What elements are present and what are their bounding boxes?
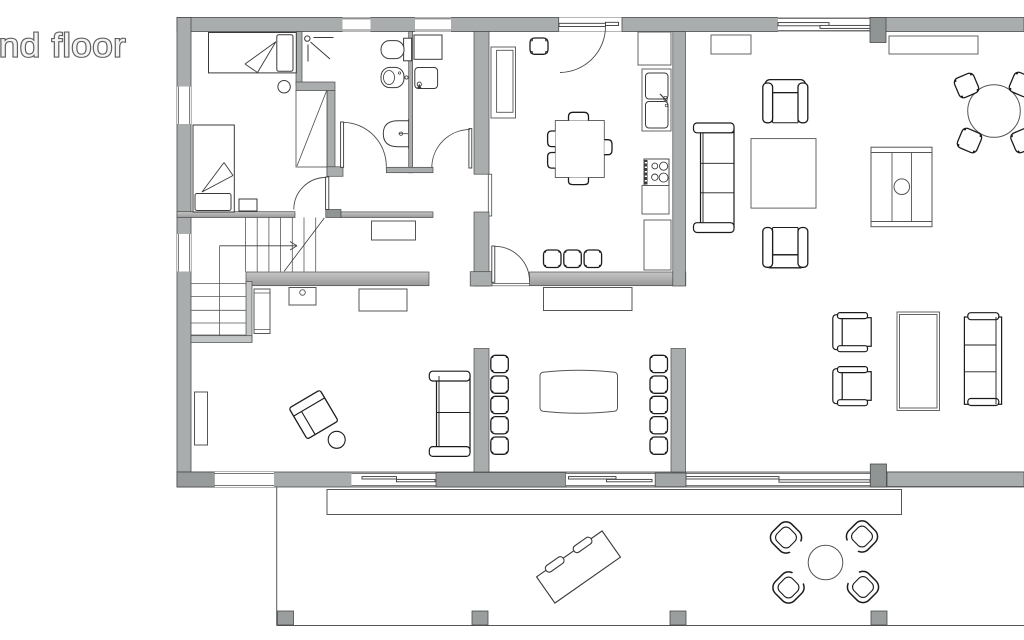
svg-text:und floor: und floor — [0, 27, 126, 64]
